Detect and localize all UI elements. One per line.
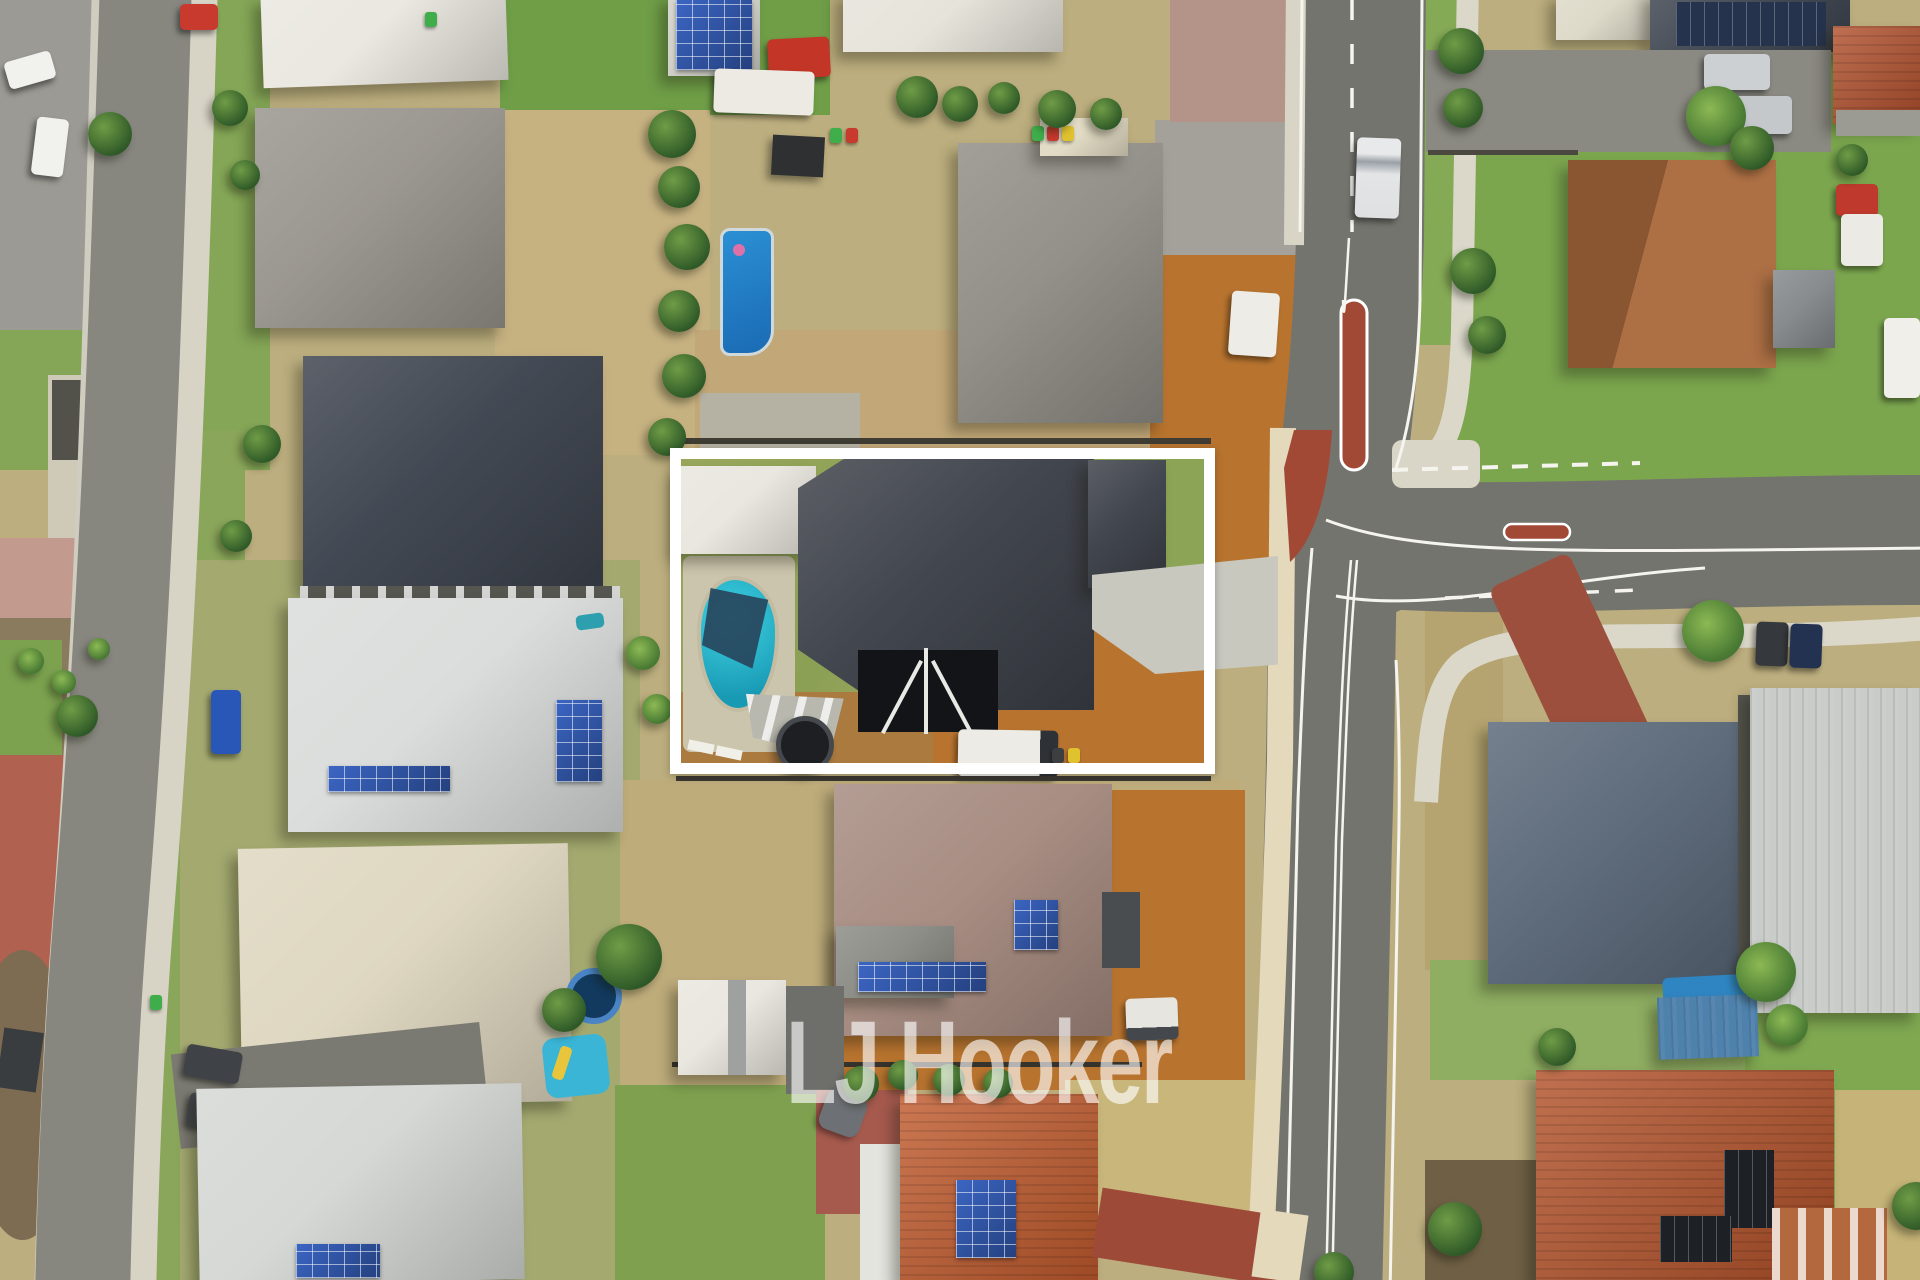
- terracotta-drive-se: [1772, 1208, 1887, 1280]
- tree-row-top-centre: [942, 86, 978, 122]
- footpath-road-west-north: [1294, 0, 1296, 245]
- red-car-top-left: [180, 4, 218, 30]
- tree: [212, 90, 248, 126]
- property-boundary-outline: [670, 448, 1215, 774]
- hedge-tree: [658, 290, 700, 332]
- white-van-ne: [1884, 318, 1920, 398]
- grey-roof-pool-house: [958, 143, 1163, 423]
- shed-solar-panels: [676, 0, 752, 70]
- solar-square-array: [1014, 900, 1058, 950]
- kids-splash-pad: [541, 1033, 611, 1099]
- wheelie-bin-green-3: [425, 12, 437, 27]
- wheelie-bin-red-2: [846, 128, 858, 143]
- palm-tree-east: [1682, 600, 1744, 662]
- shrub-in-lot: [626, 636, 660, 670]
- navy-car-east-b: [1789, 623, 1823, 668]
- tree-row-top-centre: [1090, 98, 1122, 130]
- fence-south-of-lot: [676, 776, 1211, 781]
- white-ute-ne: [1841, 214, 1883, 266]
- lap-pool: [720, 228, 774, 356]
- tree-right-top: [1468, 316, 1506, 354]
- tree-br: [1538, 1028, 1576, 1066]
- hedge-tree: [662, 354, 706, 398]
- black-solar-se-b: [1660, 1216, 1732, 1262]
- tree-row-top-centre: [896, 76, 938, 118]
- silver-car-on-road: [1355, 137, 1402, 218]
- tree: [220, 520, 252, 552]
- tree-ne: [1836, 144, 1868, 176]
- red-median-island: [1341, 300, 1367, 470]
- dark-navy-roof-house: [303, 356, 603, 588]
- tree: [88, 112, 132, 156]
- grey-carport-ne: [1773, 270, 1835, 348]
- white-shed-stripe: [728, 980, 746, 1075]
- fence-north-of-lot: [676, 438, 1211, 444]
- tree-right-top: [1443, 88, 1483, 128]
- tree-ne: [1730, 126, 1774, 170]
- dark-garage-east: [1102, 892, 1140, 968]
- solar-orange-house: [956, 1180, 1016, 1258]
- solar-array-b: [328, 766, 450, 792]
- tree: [230, 160, 260, 190]
- blue-car-street: [211, 690, 241, 754]
- white-strip-building: [860, 1144, 902, 1280]
- stone-wall-ne: [1836, 110, 1920, 136]
- concrete-apron-ne-corner: [1392, 440, 1480, 488]
- tree: [56, 695, 98, 737]
- shrub-in-lot: [642, 694, 672, 724]
- wheelie-bin-green-2: [830, 128, 842, 143]
- hedge-tree: [658, 166, 700, 208]
- palm-east: [1766, 1004, 1808, 1046]
- blue-grey-roof-house-east: [1488, 722, 1746, 984]
- wheelie-bin-green: [1032, 126, 1044, 141]
- white-caravan-top: [713, 68, 814, 115]
- hedge-tree: [648, 110, 696, 158]
- tree-row-top-centre: [988, 82, 1020, 114]
- grey-roof-house-nw: [255, 108, 505, 328]
- tree-right-top: [1450, 248, 1496, 294]
- solar-array-a: [556, 700, 602, 782]
- solar-array-sw: [296, 1244, 380, 1278]
- tree-row-top-centre: [1038, 90, 1076, 128]
- tree-right-top: [1438, 28, 1484, 74]
- palm-east: [1736, 942, 1796, 1002]
- red-median-branch: [1504, 524, 1570, 540]
- tree: [542, 988, 586, 1032]
- tree-br-corner: [1428, 1202, 1482, 1256]
- white-ute: [1228, 290, 1280, 357]
- black-garden-shed: [771, 135, 825, 178]
- blue-shed-roof: [1657, 994, 1759, 1059]
- agency-watermark: LJ Hooker: [786, 1004, 1171, 1122]
- shrub: [18, 648, 44, 674]
- brown-roof-house-ne: [1568, 160, 1776, 368]
- solar-row-array: [858, 962, 986, 992]
- wheelie-bin-yellow: [1062, 126, 1074, 141]
- solar-panels-top-right: [1676, 2, 1826, 46]
- wheelie-bin-green-4: [150, 995, 162, 1010]
- footpath-crossing: [1252, 1209, 1309, 1280]
- white-roof-top-centre: [843, 0, 1063, 52]
- shrub: [52, 670, 76, 694]
- silver-car-a: [1704, 54, 1770, 90]
- aerial-photo: LJ Hooker: [0, 0, 1920, 1280]
- tree: [243, 425, 281, 463]
- pool-floatie: [733, 244, 745, 256]
- red-car-ne: [1836, 184, 1878, 216]
- big-tree-sw-of-lot: [596, 924, 662, 990]
- white-marquee-roof: [260, 0, 508, 88]
- cream-building-top-right: [1556, 0, 1656, 40]
- shrub: [88, 638, 110, 660]
- wall-right-block: [1428, 150, 1578, 155]
- hedge-tree: [664, 224, 710, 270]
- dark-car-east-a: [1755, 621, 1789, 666]
- wheelie-bin-red: [1047, 126, 1059, 141]
